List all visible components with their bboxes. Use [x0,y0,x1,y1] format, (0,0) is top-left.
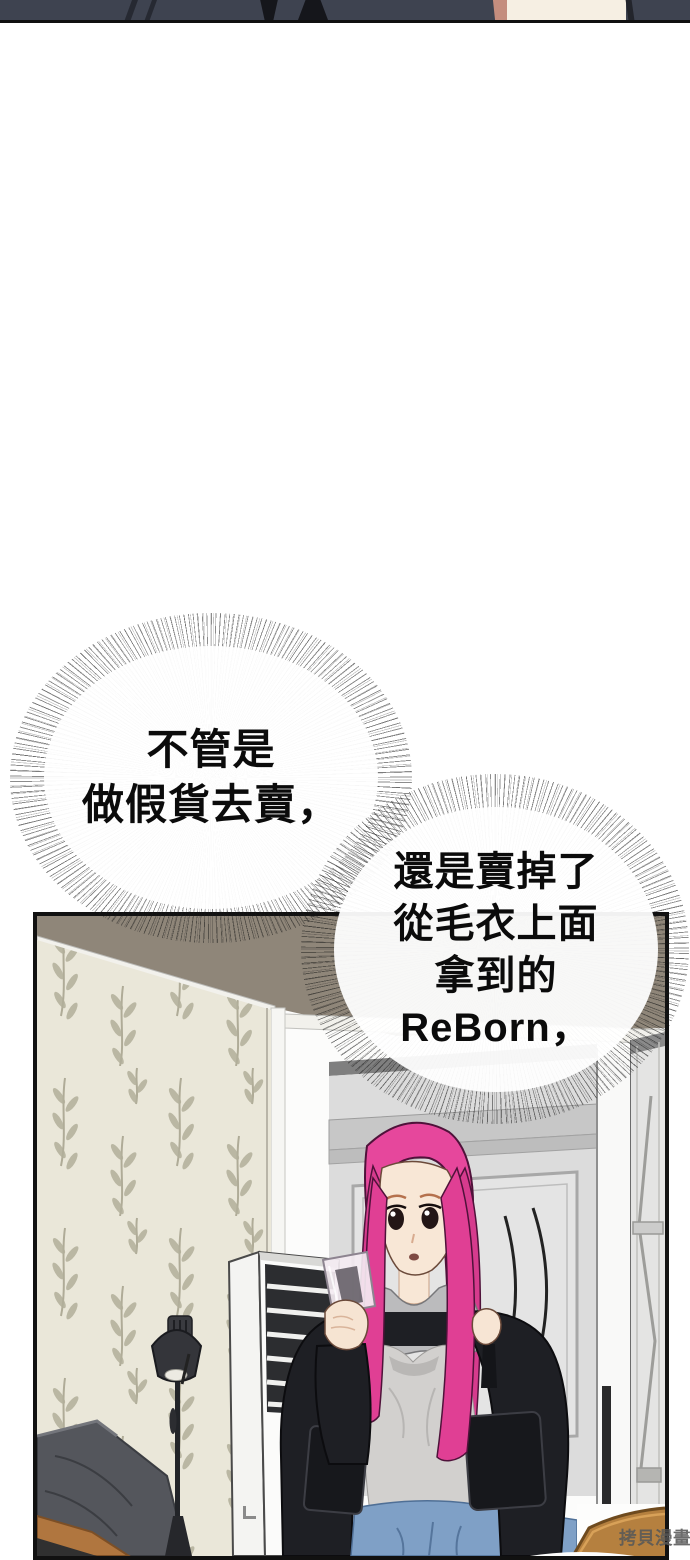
garment-fold [143,0,157,20]
mouth [409,1254,419,1261]
jacket-pocket [464,1411,546,1510]
right-eye [422,1207,439,1229]
shirt-sliver [507,0,626,20]
previous-panel-bottom [0,0,690,20]
bubble-text: 還是賣掉了 從毛衣上面 拿到的 ReBorn， [394,846,599,1054]
bubble-line: ReBorn， [394,1002,599,1054]
bubble-line: 做假貨去賣， [82,778,340,833]
garment-edge [626,0,635,20]
comic-page: 不管是 做假貨去賣， 還是賣掉了 從毛衣上面 拿到的 ReBorn， 拷貝漫畫 [0,0,690,1560]
watermark: 拷貝漫畫 [619,1525,690,1550]
panel-border [0,20,690,23]
bubble-body: 還是賣掉了 從毛衣上面 拿到的 ReBorn， [334,807,658,1092]
garment-shadow [258,0,280,20]
left-arm-sleeve [316,1344,371,1464]
garment-shadow [298,0,328,20]
bubble-line: 從毛衣上面 [394,898,599,950]
bubble-line: 不管是 [82,723,340,778]
left-eye [388,1208,404,1230]
bubble-text: 不管是 做假貨去賣， [82,723,340,832]
left-fist [325,1300,368,1349]
garment-fold [123,0,138,20]
bubble-line: 還是賣掉了 [394,846,599,898]
bubble-line: 拿到的 [394,950,599,1002]
